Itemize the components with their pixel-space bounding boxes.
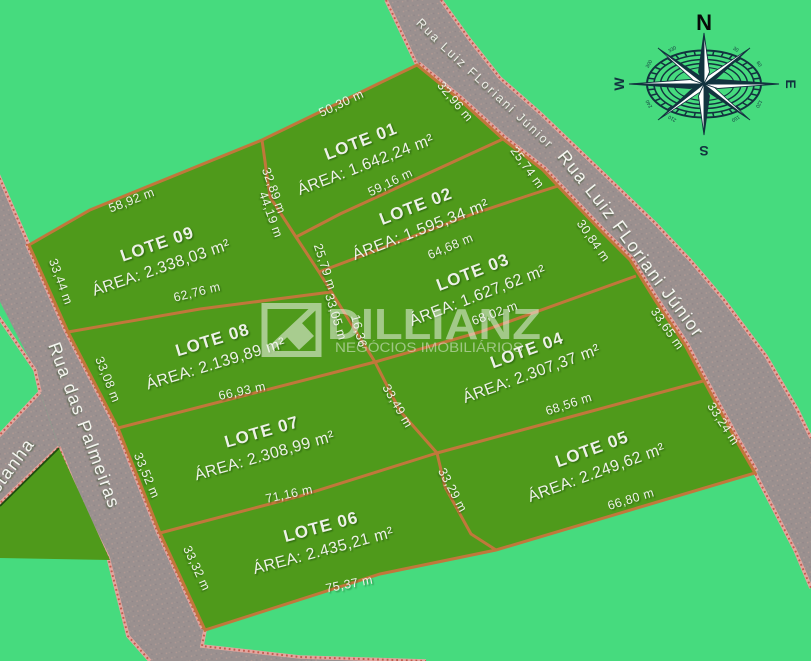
svg-text:W: W xyxy=(611,77,627,91)
svg-text:NEGÓCIOS IMOBILIÁRIOS: NEGÓCIOS IMOBILIÁRIOS xyxy=(335,340,523,355)
svg-text:E: E xyxy=(783,79,799,88)
svg-text:N: N xyxy=(696,10,712,35)
svg-text:S: S xyxy=(699,143,708,159)
